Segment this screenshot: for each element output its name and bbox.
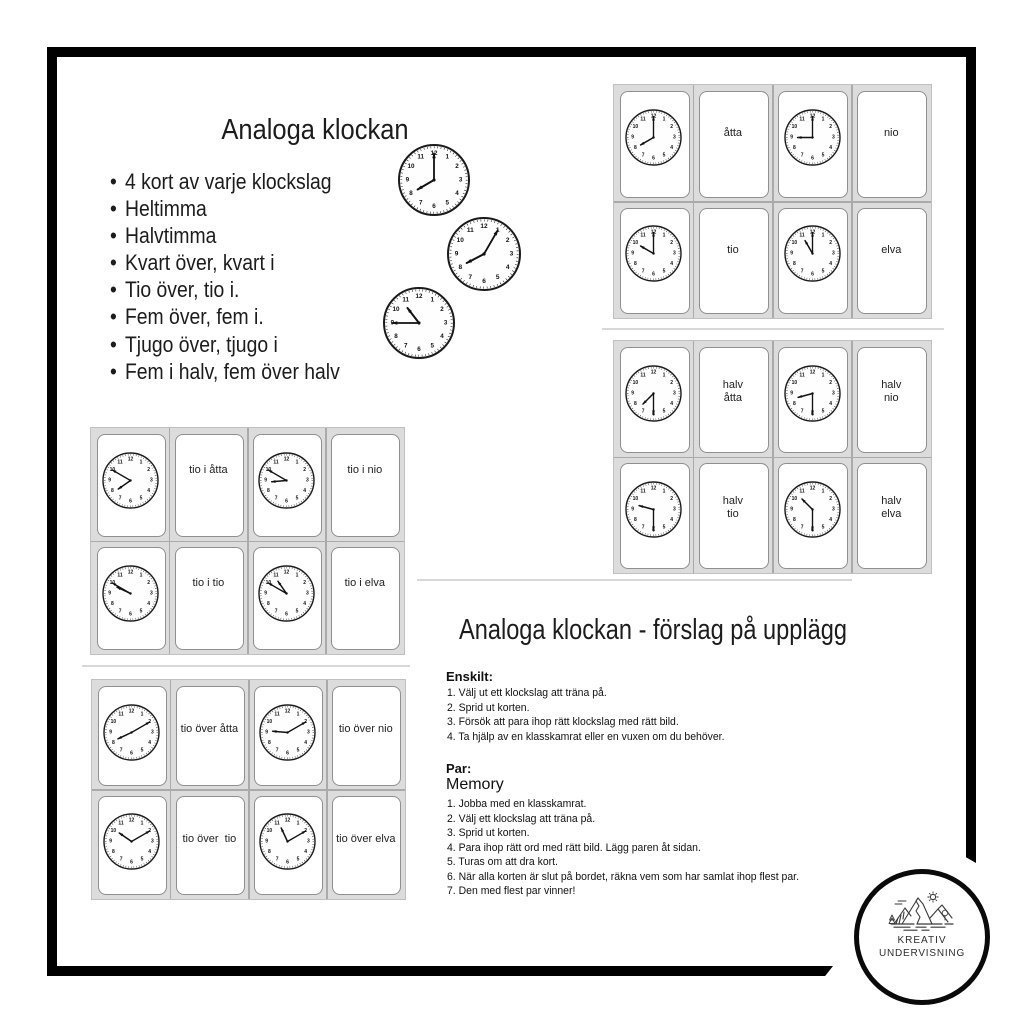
- svg-text:4: 4: [829, 400, 832, 406]
- svg-text:9: 9: [264, 590, 267, 596]
- svg-text:7: 7: [800, 524, 803, 530]
- svg-text:2: 2: [829, 380, 832, 386]
- svg-text:4: 4: [506, 264, 510, 271]
- svg-text:7: 7: [800, 408, 803, 414]
- svg-text:3: 3: [832, 251, 835, 257]
- svg-text:3: 3: [151, 839, 154, 845]
- svg-text:11: 11: [118, 711, 124, 717]
- svg-text:1: 1: [663, 372, 666, 378]
- svg-text:5: 5: [663, 269, 666, 275]
- svg-text:7: 7: [404, 342, 408, 349]
- svg-text:11: 11: [467, 227, 474, 234]
- svg-text:4: 4: [670, 516, 673, 522]
- svg-text:9: 9: [108, 477, 111, 483]
- svg-text:7: 7: [275, 495, 278, 501]
- svg-text:8: 8: [112, 739, 115, 745]
- svg-text:7: 7: [119, 857, 122, 863]
- svg-text:5: 5: [821, 524, 824, 530]
- svg-text:4: 4: [303, 487, 306, 493]
- svg-text:2: 2: [506, 237, 510, 244]
- svg-text:6: 6: [286, 859, 289, 865]
- svg-text:3: 3: [832, 134, 835, 140]
- svg-text:11: 11: [117, 459, 123, 465]
- svg-text:2: 2: [303, 580, 306, 586]
- svg-text:2: 2: [147, 467, 150, 473]
- svg-text:11: 11: [402, 296, 409, 303]
- svg-text:2: 2: [670, 380, 673, 386]
- svg-text:4: 4: [147, 487, 150, 493]
- svg-text:8: 8: [394, 333, 398, 340]
- svg-text:8: 8: [458, 264, 462, 271]
- svg-text:12: 12: [285, 818, 291, 824]
- svg-text:8: 8: [793, 516, 796, 522]
- svg-text:8: 8: [268, 849, 271, 855]
- svg-text:6: 6: [811, 155, 814, 161]
- svg-text:12: 12: [809, 369, 815, 375]
- svg-text:6: 6: [130, 859, 133, 865]
- svg-text:4: 4: [148, 849, 151, 855]
- svg-text:2: 2: [440, 306, 444, 313]
- svg-text:9: 9: [631, 251, 634, 257]
- svg-text:2: 2: [670, 240, 673, 246]
- svg-text:5: 5: [297, 857, 300, 863]
- svg-text:8: 8: [634, 261, 637, 267]
- svg-text:3: 3: [307, 839, 310, 845]
- svg-text:4: 4: [670, 144, 673, 150]
- svg-text:12: 12: [285, 708, 291, 714]
- svg-text:10: 10: [110, 719, 116, 725]
- svg-text:12: 12: [127, 456, 133, 462]
- svg-text:3: 3: [458, 177, 462, 184]
- svg-text:12: 12: [651, 369, 657, 375]
- svg-text:8: 8: [409, 190, 413, 197]
- svg-text:1: 1: [296, 572, 299, 578]
- svg-text:7: 7: [468, 274, 472, 281]
- svg-text:1: 1: [821, 488, 824, 494]
- svg-text:12: 12: [284, 456, 290, 462]
- svg-text:5: 5: [663, 408, 666, 414]
- svg-text:10: 10: [456, 237, 464, 244]
- svg-text:5: 5: [663, 152, 666, 158]
- svg-text:8: 8: [267, 600, 270, 606]
- svg-text:12: 12: [284, 569, 290, 575]
- svg-text:12: 12: [480, 223, 488, 230]
- svg-text:8: 8: [634, 400, 637, 406]
- svg-text:8: 8: [634, 144, 637, 150]
- svg-text:7: 7: [118, 608, 121, 614]
- svg-text:8: 8: [793, 400, 796, 406]
- svg-text:11: 11: [640, 488, 646, 494]
- svg-text:8: 8: [793, 261, 796, 267]
- svg-text:11: 11: [640, 116, 646, 122]
- svg-text:7: 7: [642, 408, 645, 414]
- svg-text:9: 9: [265, 729, 268, 735]
- svg-text:11: 11: [799, 372, 805, 378]
- svg-text:6: 6: [129, 611, 132, 617]
- svg-text:9: 9: [631, 506, 634, 512]
- svg-text:10: 10: [633, 240, 639, 246]
- svg-text:4: 4: [829, 144, 832, 150]
- svg-text:9: 9: [109, 729, 112, 735]
- svg-text:7: 7: [800, 152, 803, 158]
- svg-text:5: 5: [821, 152, 824, 158]
- svg-text:5: 5: [296, 495, 299, 501]
- svg-text:4: 4: [148, 739, 151, 745]
- svg-text:4: 4: [829, 261, 832, 267]
- svg-text:2: 2: [455, 163, 459, 170]
- svg-text:11: 11: [799, 116, 805, 122]
- svg-text:3: 3: [832, 506, 835, 512]
- svg-text:3: 3: [307, 729, 310, 735]
- svg-text:2: 2: [670, 496, 673, 502]
- svg-text:12: 12: [127, 569, 133, 575]
- svg-text:11: 11: [118, 820, 124, 826]
- svg-text:6: 6: [652, 271, 655, 277]
- svg-text:12: 12: [809, 485, 815, 491]
- svg-text:10: 10: [791, 240, 797, 246]
- svg-text:1: 1: [663, 232, 666, 238]
- svg-text:9: 9: [790, 251, 793, 257]
- svg-text:6: 6: [652, 155, 655, 161]
- svg-text:2: 2: [670, 124, 673, 130]
- svg-text:6: 6: [417, 346, 421, 353]
- svg-text:7: 7: [419, 200, 423, 207]
- svg-text:7: 7: [800, 269, 803, 275]
- svg-text:7: 7: [118, 495, 121, 501]
- svg-text:11: 11: [640, 232, 646, 238]
- svg-text:3: 3: [306, 590, 309, 596]
- svg-text:1: 1: [139, 572, 142, 578]
- svg-text:7: 7: [642, 152, 645, 158]
- svg-text:8: 8: [111, 487, 114, 493]
- svg-text:6: 6: [432, 203, 436, 210]
- svg-text:1: 1: [297, 711, 300, 717]
- svg-text:3: 3: [150, 590, 153, 596]
- svg-text:9: 9: [455, 251, 459, 258]
- svg-text:5: 5: [140, 747, 143, 753]
- svg-text:5: 5: [821, 269, 824, 275]
- svg-text:4: 4: [147, 600, 150, 606]
- svg-text:3: 3: [443, 319, 447, 326]
- svg-text:1: 1: [821, 372, 824, 378]
- svg-text:5: 5: [296, 608, 299, 614]
- svg-text:9: 9: [108, 590, 111, 596]
- svg-text:8: 8: [268, 739, 271, 745]
- svg-text:1: 1: [821, 116, 824, 122]
- svg-text:2: 2: [147, 580, 150, 586]
- svg-text:1: 1: [663, 488, 666, 494]
- svg-text:5: 5: [663, 524, 666, 530]
- svg-text:10: 10: [791, 496, 797, 502]
- svg-text:3: 3: [673, 134, 676, 140]
- svg-text:8: 8: [267, 487, 270, 493]
- svg-text:7: 7: [276, 857, 279, 863]
- svg-text:1: 1: [297, 820, 300, 826]
- svg-text:1: 1: [445, 154, 449, 161]
- svg-text:3: 3: [151, 729, 154, 735]
- svg-text:6: 6: [285, 498, 288, 504]
- svg-text:4: 4: [455, 190, 459, 197]
- svg-text:11: 11: [799, 488, 805, 494]
- svg-text:4: 4: [304, 849, 307, 855]
- svg-text:7: 7: [119, 747, 122, 753]
- svg-text:11: 11: [274, 711, 280, 717]
- svg-text:9: 9: [405, 177, 409, 184]
- svg-text:2: 2: [829, 496, 832, 502]
- svg-text:9: 9: [631, 134, 634, 140]
- svg-text:12: 12: [128, 708, 134, 714]
- svg-text:1: 1: [296, 459, 299, 465]
- svg-text:11: 11: [273, 572, 279, 578]
- svg-text:7: 7: [275, 608, 278, 614]
- svg-text:6: 6: [482, 278, 486, 285]
- svg-text:3: 3: [673, 390, 676, 396]
- svg-text:10: 10: [267, 828, 273, 834]
- svg-text:3: 3: [832, 390, 835, 396]
- svg-text:4: 4: [670, 400, 673, 406]
- svg-text:9: 9: [790, 134, 793, 140]
- svg-text:5: 5: [445, 200, 449, 207]
- svg-text:9: 9: [790, 390, 793, 396]
- svg-text:4: 4: [303, 600, 306, 606]
- svg-text:7: 7: [276, 747, 279, 753]
- svg-text:10: 10: [791, 124, 797, 130]
- svg-text:8: 8: [793, 144, 796, 150]
- svg-text:1: 1: [139, 459, 142, 465]
- svg-text:9: 9: [264, 477, 267, 483]
- svg-text:10: 10: [633, 124, 639, 130]
- svg-text:3: 3: [673, 251, 676, 257]
- svg-text:10: 10: [110, 828, 116, 834]
- svg-text:5: 5: [139, 495, 142, 501]
- svg-text:11: 11: [117, 572, 123, 578]
- svg-text:4: 4: [304, 739, 307, 745]
- svg-text:10: 10: [407, 163, 415, 170]
- svg-text:4: 4: [829, 516, 832, 522]
- svg-text:12: 12: [415, 293, 423, 300]
- svg-text:10: 10: [791, 380, 797, 386]
- svg-text:8: 8: [111, 600, 114, 606]
- svg-text:8: 8: [112, 849, 115, 855]
- svg-text:12: 12: [128, 818, 134, 824]
- svg-text:11: 11: [274, 820, 280, 826]
- svg-text:8: 8: [634, 516, 637, 522]
- svg-text:9: 9: [265, 839, 268, 845]
- svg-text:10: 10: [633, 496, 639, 502]
- svg-text:2: 2: [303, 467, 306, 473]
- svg-text:11: 11: [640, 372, 646, 378]
- svg-text:1: 1: [430, 296, 434, 303]
- svg-text:11: 11: [417, 154, 424, 161]
- svg-text:3: 3: [306, 477, 309, 483]
- svg-text:12: 12: [651, 485, 657, 491]
- svg-text:2: 2: [829, 124, 832, 130]
- svg-text:10: 10: [392, 306, 400, 313]
- svg-text:9: 9: [790, 506, 793, 512]
- svg-text:11: 11: [799, 232, 805, 238]
- svg-text:11: 11: [273, 459, 279, 465]
- svg-text:5: 5: [496, 274, 500, 281]
- svg-text:10: 10: [633, 380, 639, 386]
- svg-text:4: 4: [670, 261, 673, 267]
- svg-text:1: 1: [821, 232, 824, 238]
- svg-text:7: 7: [642, 269, 645, 275]
- svg-text:6: 6: [285, 611, 288, 617]
- svg-text:5: 5: [821, 408, 824, 414]
- svg-text:9: 9: [631, 390, 634, 396]
- svg-text:3: 3: [673, 506, 676, 512]
- svg-text:10: 10: [267, 719, 273, 725]
- svg-text:5: 5: [297, 747, 300, 753]
- svg-text:1: 1: [140, 711, 143, 717]
- svg-text:9: 9: [109, 839, 112, 845]
- svg-text:1: 1: [140, 820, 143, 826]
- svg-text:3: 3: [150, 477, 153, 483]
- svg-text:6: 6: [130, 750, 133, 756]
- svg-text:7: 7: [642, 524, 645, 530]
- svg-text:1: 1: [663, 116, 666, 122]
- svg-text:5: 5: [139, 608, 142, 614]
- svg-text:2: 2: [829, 240, 832, 246]
- svg-text:5: 5: [140, 857, 143, 863]
- svg-text:3: 3: [509, 251, 513, 258]
- svg-text:4: 4: [440, 333, 444, 340]
- svg-text:6: 6: [286, 750, 289, 756]
- svg-text:6: 6: [811, 271, 814, 277]
- svg-text:5: 5: [430, 342, 434, 349]
- svg-text:6: 6: [129, 498, 132, 504]
